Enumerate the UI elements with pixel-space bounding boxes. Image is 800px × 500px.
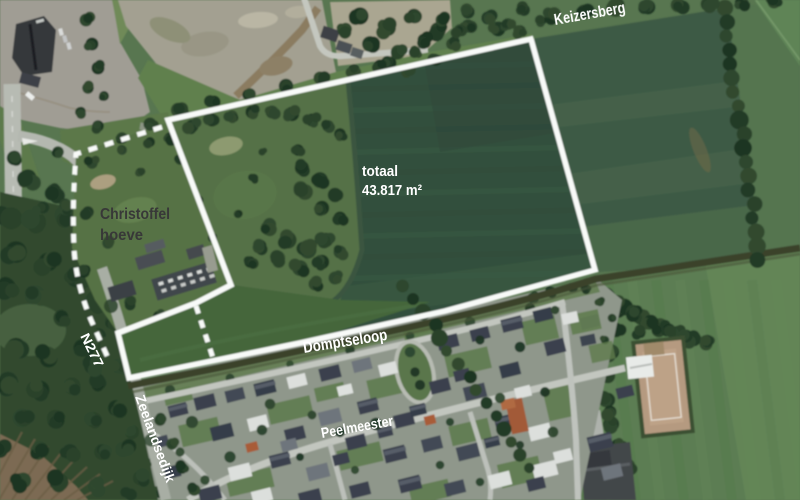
svg-text:totaal: totaal bbox=[362, 163, 398, 180]
svg-text:43.817 m²: 43.817 m² bbox=[362, 182, 422, 199]
svg-text:Christoffel: Christoffel bbox=[100, 206, 170, 223]
svg-text:hoeve: hoeve bbox=[100, 227, 143, 244]
